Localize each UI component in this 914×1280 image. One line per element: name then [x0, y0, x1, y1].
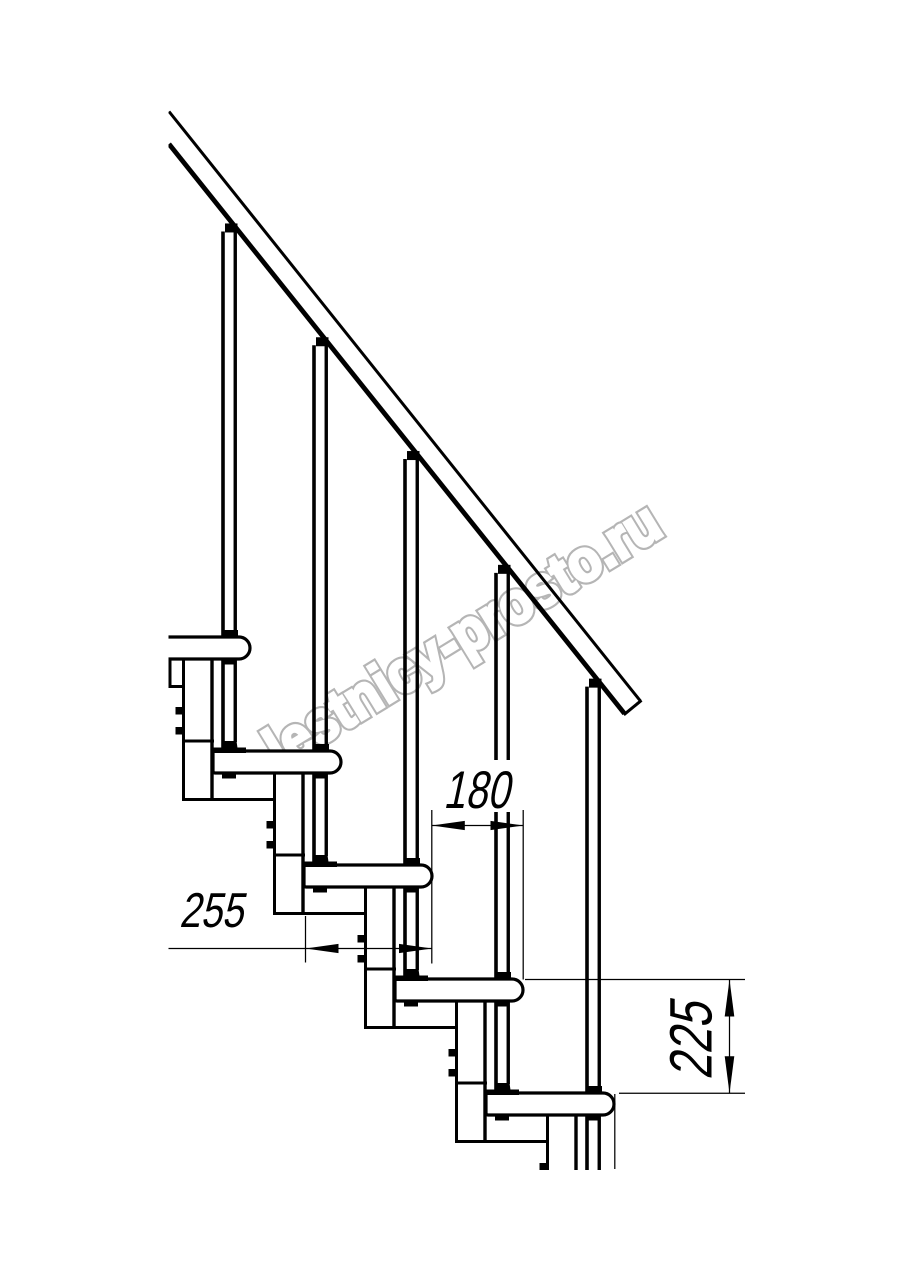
svg-text:255: 255 [177, 882, 253, 937]
svg-text:225: 225 [657, 991, 724, 1082]
svg-text:180: 180 [440, 761, 519, 820]
